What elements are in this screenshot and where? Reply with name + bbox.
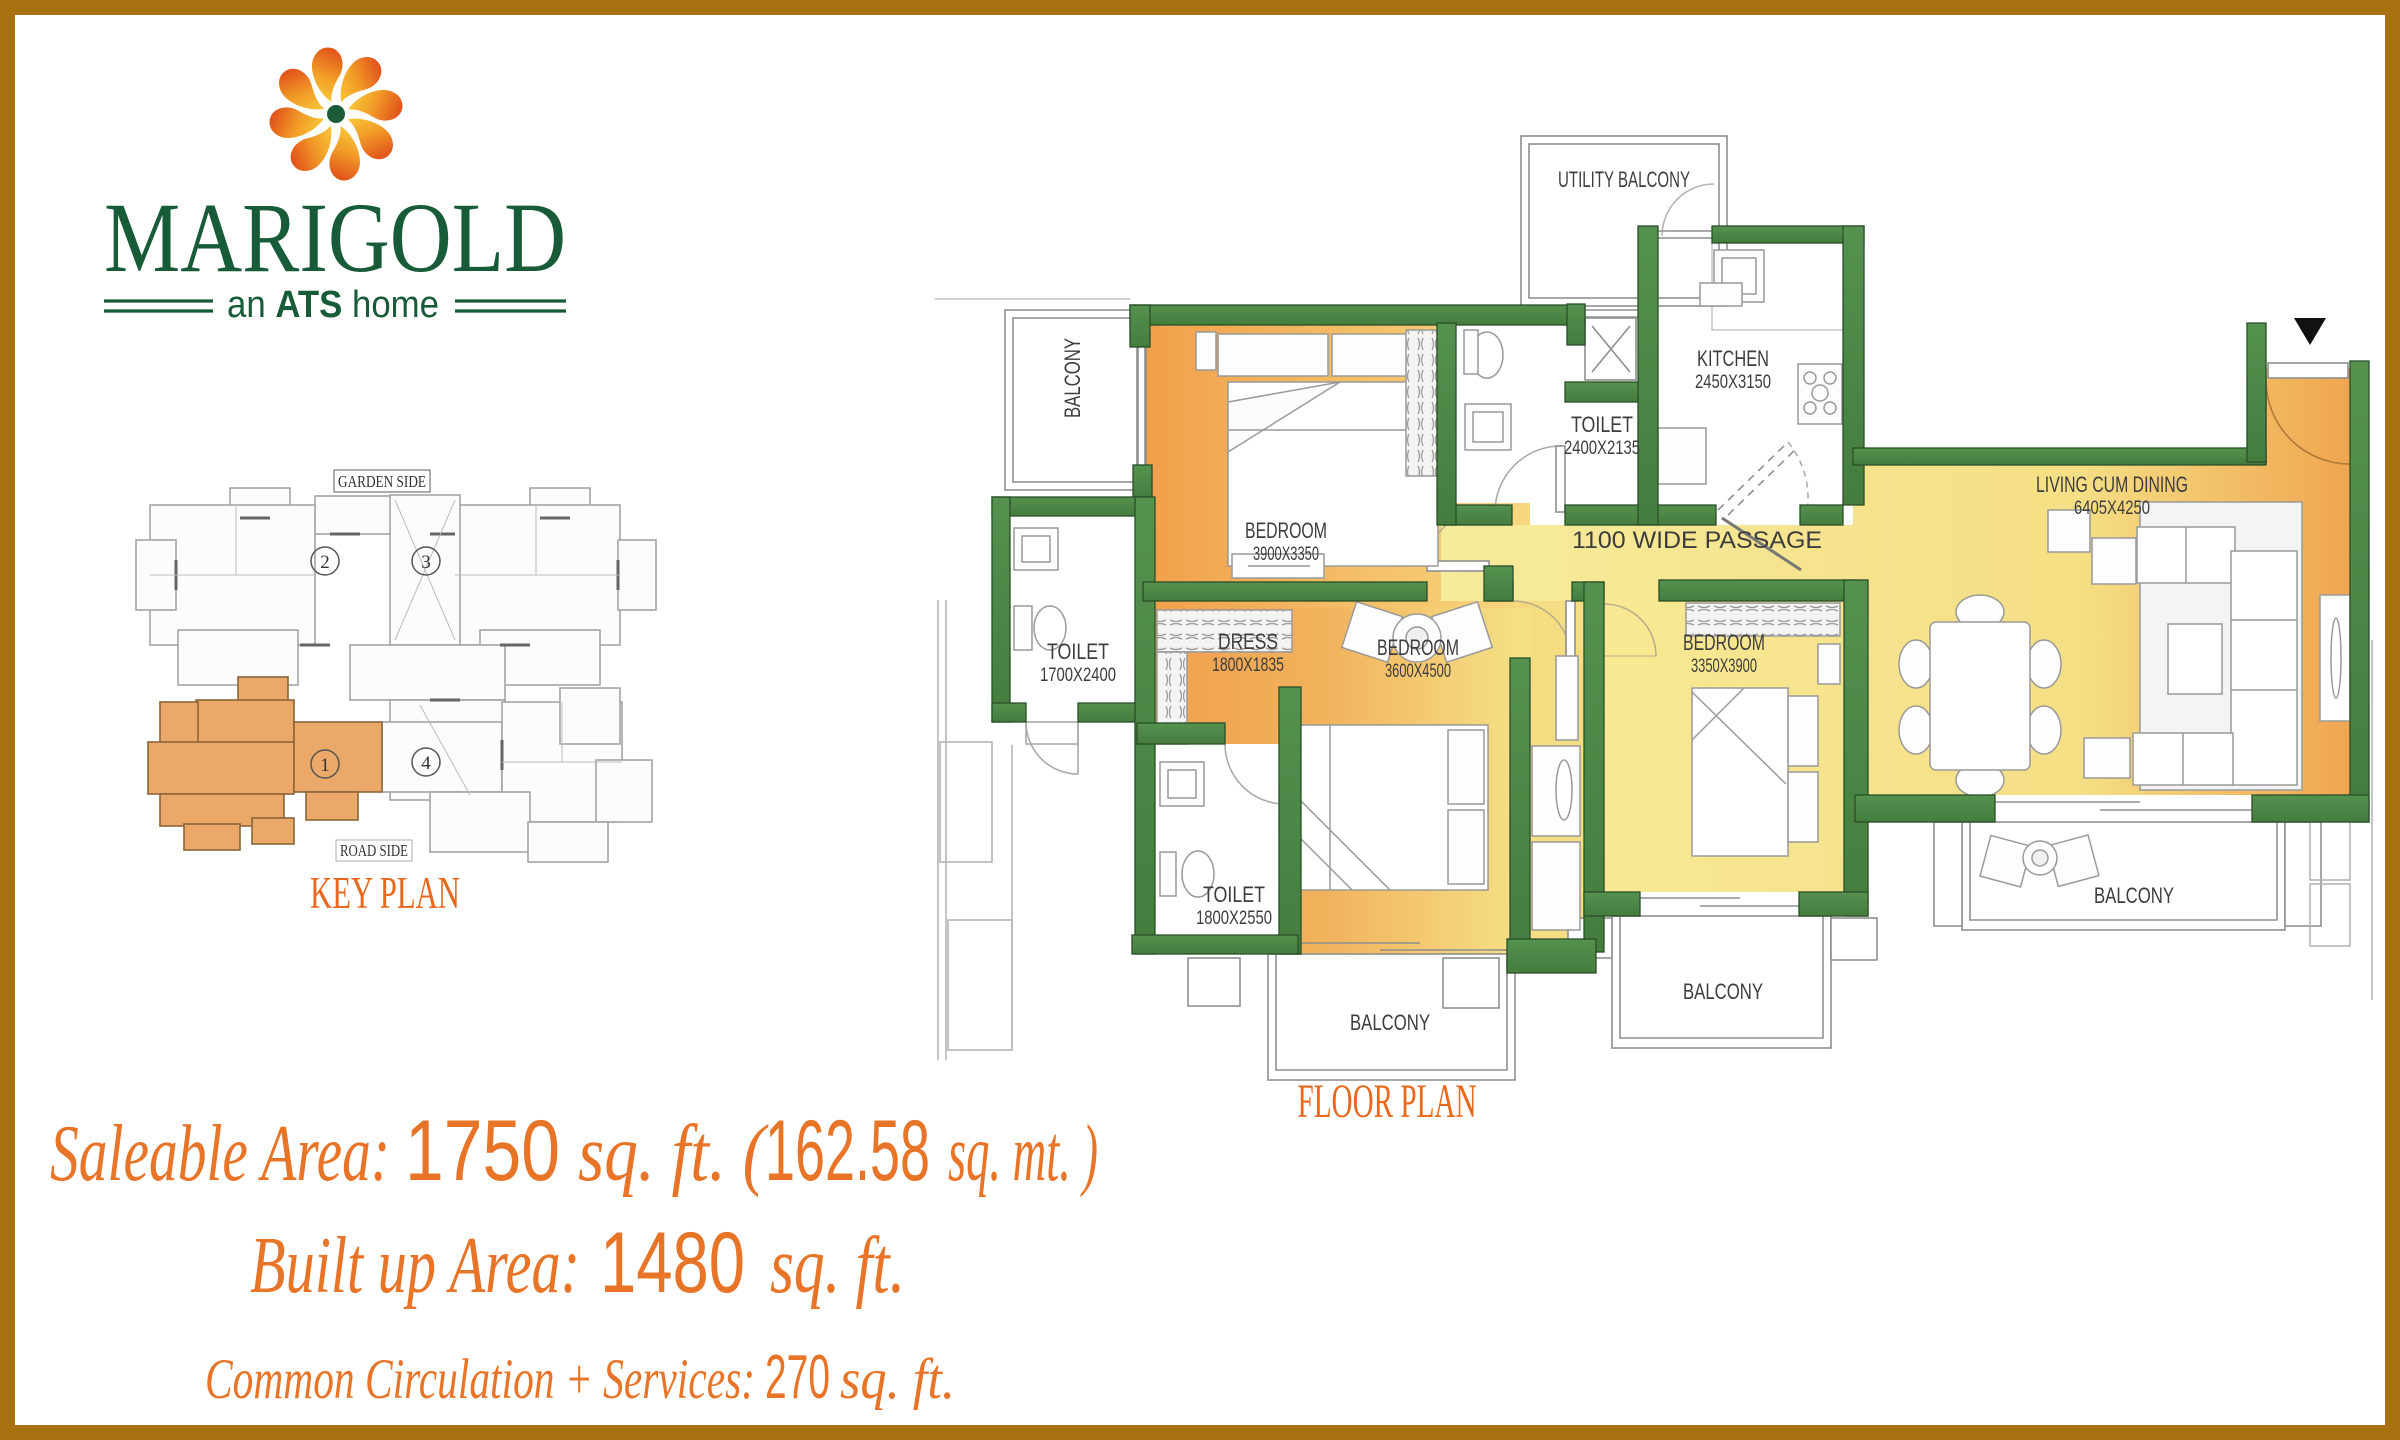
svg-text:GARDEN SIDE: GARDEN SIDE — [338, 472, 426, 491]
svg-text:KEY PLAN: KEY PLAN — [310, 868, 460, 918]
svg-text:ROAD SIDE: ROAD SIDE — [340, 841, 408, 860]
svg-text:TOILET: TOILET — [1203, 882, 1265, 907]
svg-text:BALCONY: BALCONY — [2094, 883, 2174, 908]
svg-text:BEDROOM: BEDROOM — [1377, 635, 1459, 660]
svg-text:TOILET: TOILET — [1571, 412, 1633, 437]
svg-text:1: 1 — [320, 755, 330, 776]
svg-text:1100 WIDE PASSAGE: 1100 WIDE PASSAGE — [1572, 527, 1822, 554]
svg-text:LIVING CUM DINING: LIVING CUM DINING — [2036, 472, 2188, 497]
svg-text:3600X4500: 3600X4500 — [1385, 661, 1451, 682]
svg-text:BEDROOM: BEDROOM — [1683, 630, 1765, 655]
svg-text:BALCONY: BALCONY — [1060, 338, 1085, 418]
svg-text:FLOOR PLAN: FLOOR PLAN — [1298, 1075, 1477, 1128]
svg-text:1700X2400: 1700X2400 — [1040, 665, 1116, 686]
svg-text:Built up Area:1480sq. ft.: Built up Area:1480sq. ft. — [250, 1215, 905, 1311]
svg-text:TOILET: TOILET — [1047, 639, 1109, 664]
svg-text:2450X3150: 2450X3150 — [1695, 372, 1771, 393]
svg-text:UTILITY BALCONY: UTILITY BALCONY — [1558, 167, 1690, 192]
svg-text:DRESS: DRESS — [1218, 629, 1278, 654]
svg-text:BEDROOM: BEDROOM — [1245, 518, 1327, 543]
svg-text:BALCONY: BALCONY — [1350, 1010, 1430, 1035]
svg-text:6405X4250: 6405X4250 — [2074, 498, 2150, 519]
svg-text:MARIGOLD: MARIGOLD — [104, 182, 566, 293]
svg-text:3: 3 — [421, 552, 431, 573]
svg-text:Common Circulation + Services:: Common Circulation + Services:270sq. ft. — [205, 1343, 955, 1412]
svg-text:BALCONY: BALCONY — [1683, 979, 1763, 1004]
svg-text:1800X1835: 1800X1835 — [1212, 655, 1284, 676]
svg-text:2400X2135: 2400X2135 — [1564, 438, 1640, 459]
svg-text:3900X3350: 3900X3350 — [1253, 544, 1319, 565]
svg-text:4: 4 — [421, 753, 431, 774]
svg-text:an ATS home: an ATS home — [227, 284, 439, 326]
svg-text:KITCHEN: KITCHEN — [1697, 346, 1769, 371]
svg-text:1800X2550: 1800X2550 — [1196, 908, 1272, 929]
svg-text:2: 2 — [320, 552, 330, 573]
svg-text:3350X3900: 3350X3900 — [1691, 656, 1757, 677]
